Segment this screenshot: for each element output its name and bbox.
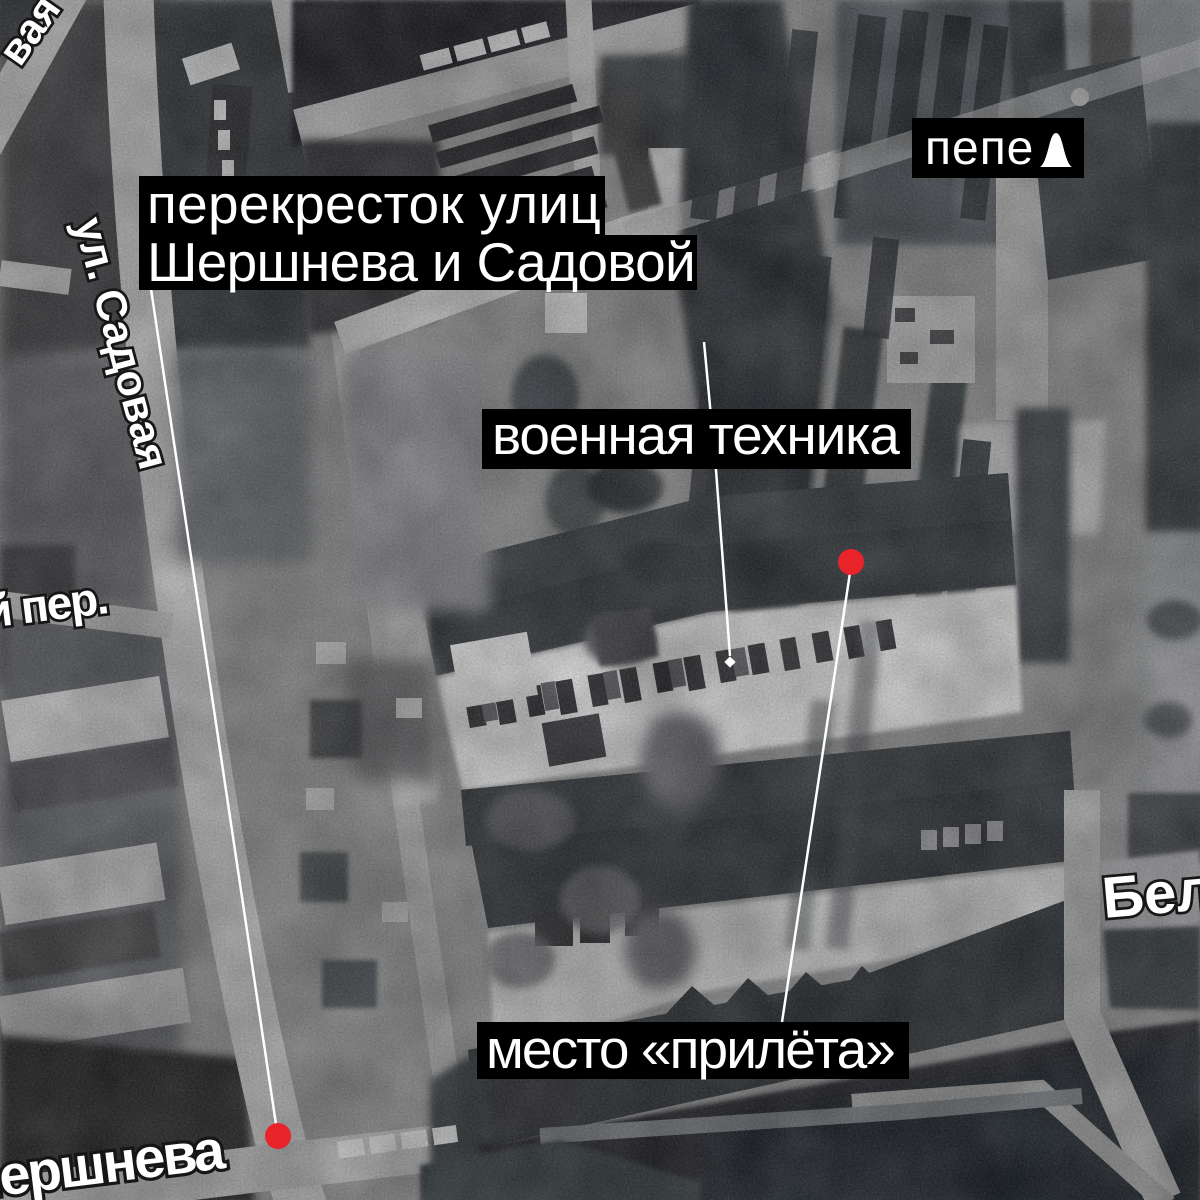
svg-text:Бел: Бел	[1099, 857, 1200, 931]
